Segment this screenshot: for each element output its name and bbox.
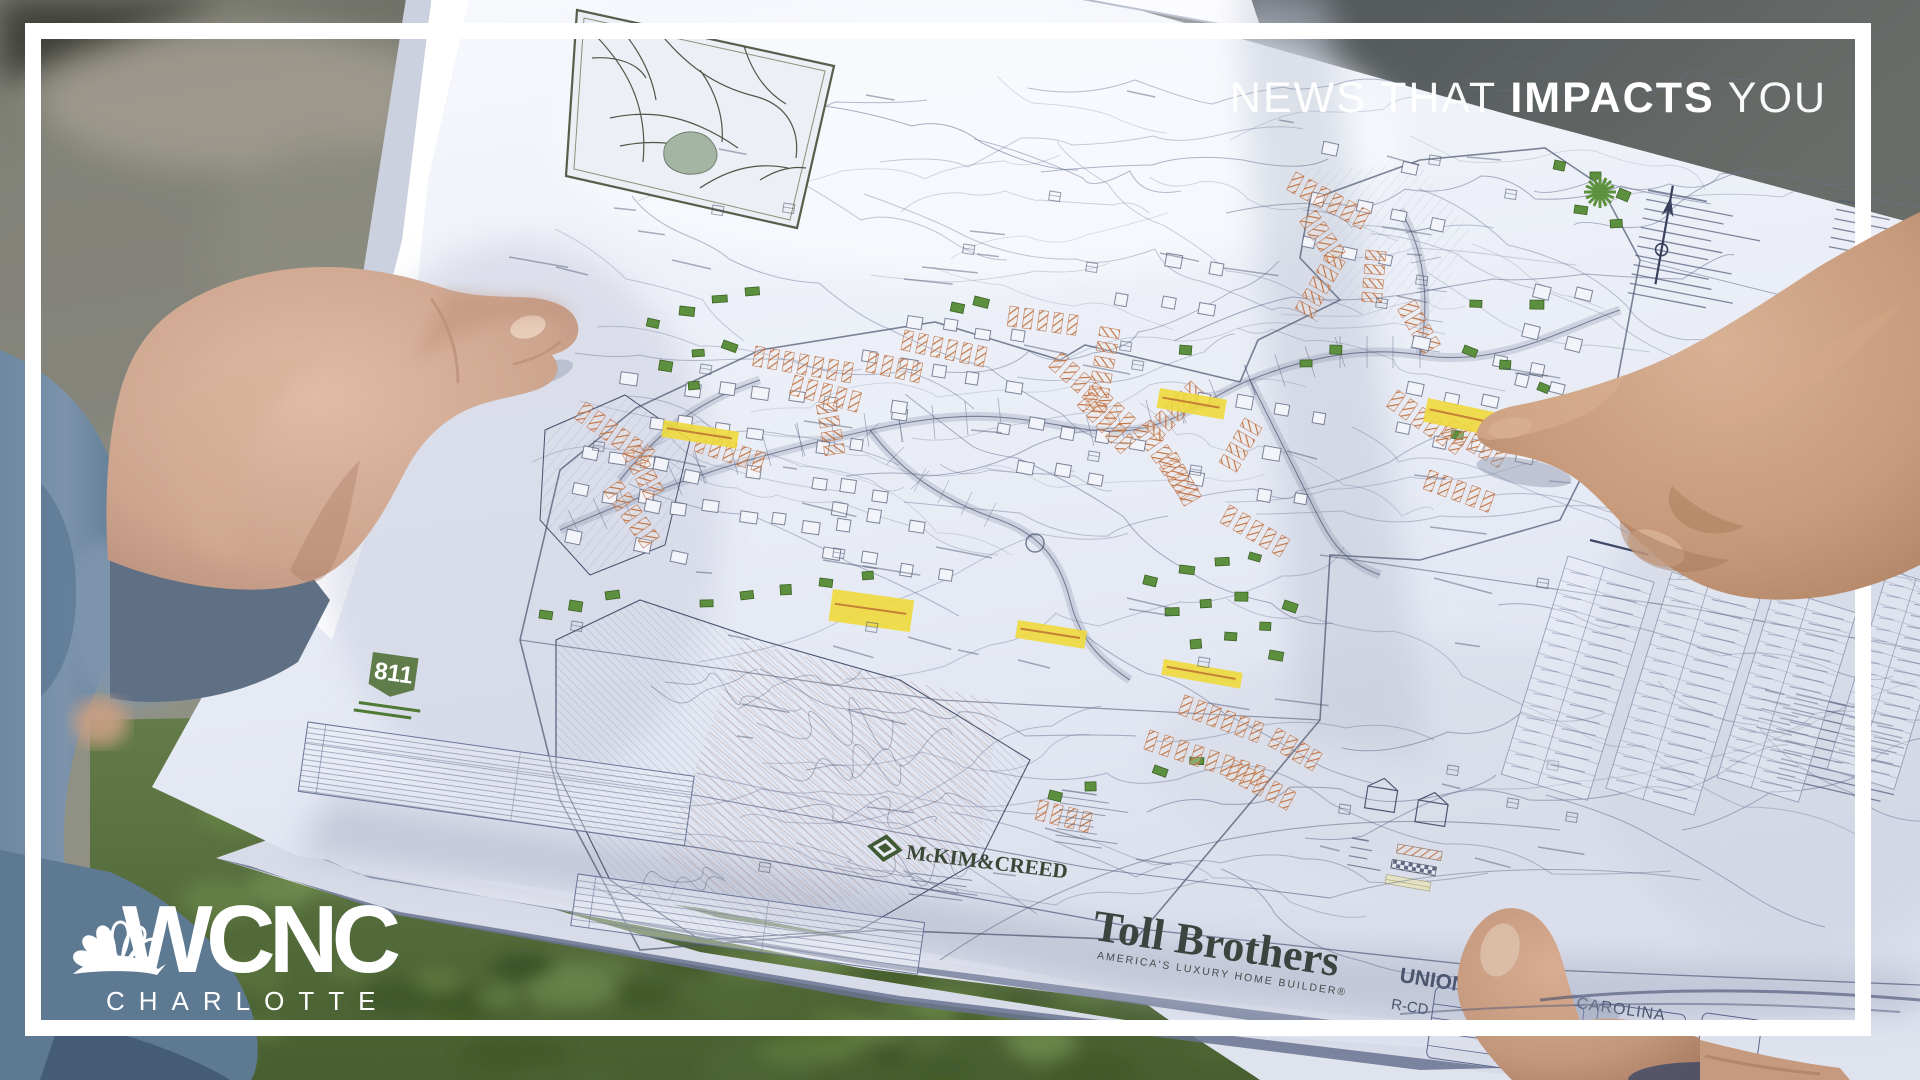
svg-text:WCNC: WCNC [122, 886, 399, 993]
svg-text:CHARLOTTE: CHARLOTTE [106, 986, 389, 1016]
svg-text:NEWS THAT IMPACTS YOU: NEWS THAT IMPACTS YOU [1230, 74, 1827, 122]
svg-text:811: 811 [373, 658, 415, 690]
